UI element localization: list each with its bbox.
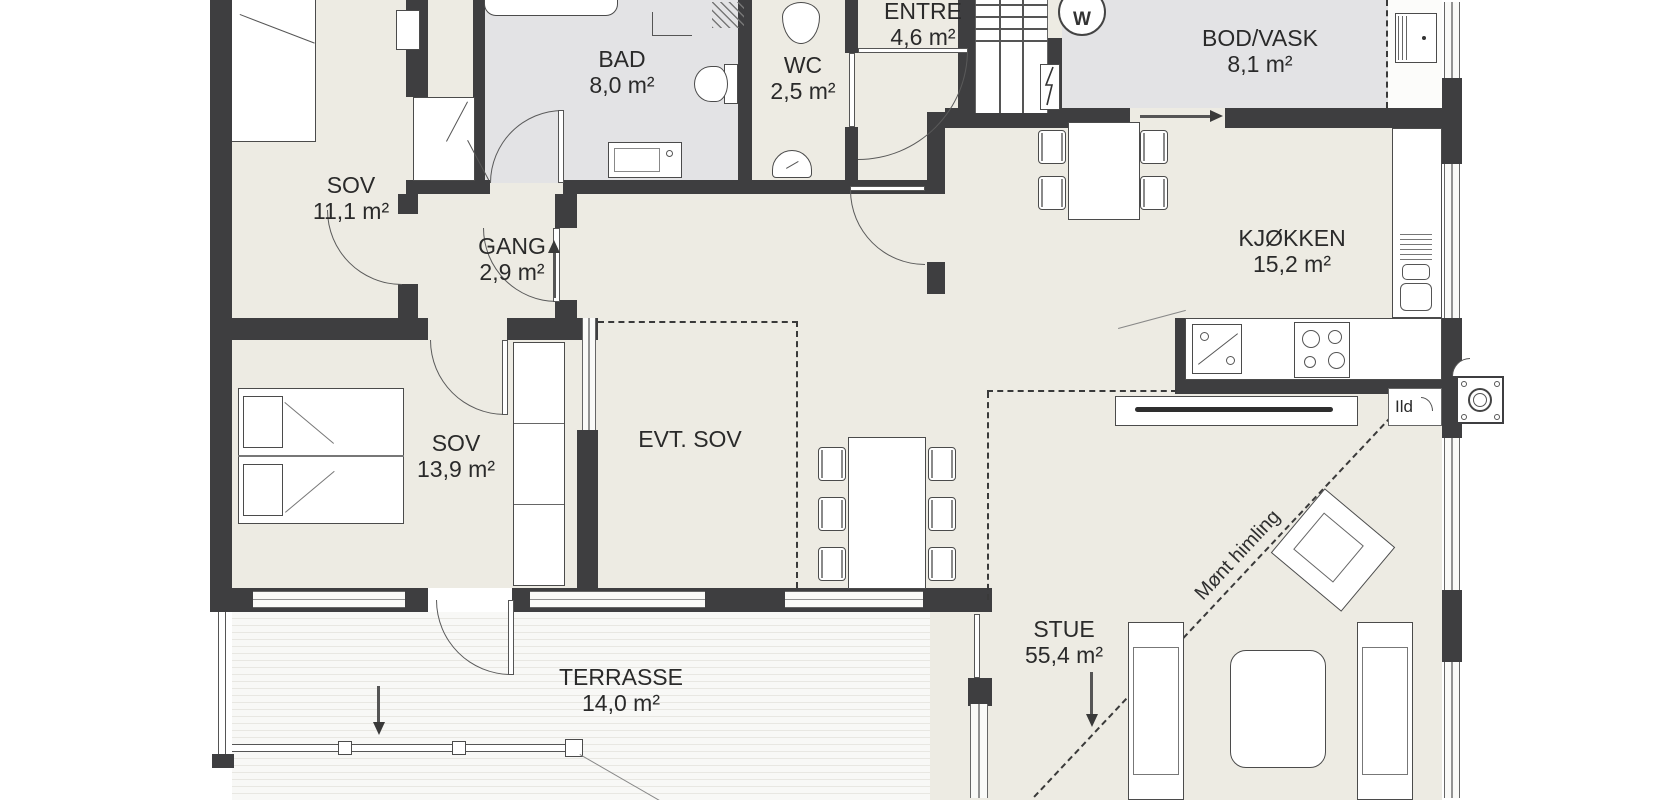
wall — [210, 0, 232, 612]
room-area: 15,2 m² — [1238, 251, 1345, 277]
dashed-line — [796, 321, 798, 588]
sink-basin — [1402, 264, 1430, 280]
railing-left — [218, 612, 226, 758]
wall — [1175, 318, 1185, 378]
burner — [1302, 330, 1320, 348]
chair — [928, 497, 956, 531]
room-label-stue: STUE 55,4 m² — [1025, 616, 1103, 668]
wall — [845, 127, 858, 180]
sofa — [1128, 622, 1184, 800]
room-name: WC — [770, 52, 835, 78]
dashed-line — [987, 390, 1177, 392]
chair — [928, 547, 956, 581]
wall — [232, 318, 428, 340]
burner — [1328, 352, 1345, 369]
desk — [396, 10, 420, 50]
stair-treads — [975, 4, 1048, 52]
arrow-down — [377, 686, 380, 724]
room-area: 11,1 m² — [313, 198, 389, 224]
wardrobe — [513, 342, 565, 586]
wall — [1225, 108, 1442, 128]
door-leaf — [850, 186, 925, 191]
room-label-kjokken: KJØKKEN 15,2 m² — [1238, 225, 1345, 277]
sofa-seat — [1362, 647, 1408, 775]
arrow-up-head — [548, 240, 560, 253]
vanity-faucet — [666, 150, 673, 157]
fireplace-label-box: Ild — [1388, 388, 1442, 426]
lightning-icon — [1041, 65, 1059, 107]
arrow-up — [553, 252, 556, 298]
room-area: 2,5 m² — [770, 78, 835, 104]
pillow — [243, 396, 283, 448]
vanity-basin — [614, 148, 660, 172]
railing-post — [452, 741, 466, 755]
dishwasher-symbol — [1200, 332, 1209, 341]
room-area: 13,9 m² — [417, 456, 495, 482]
room-label-entre: ENTRE 4,6 m² — [884, 0, 962, 50]
dining-table — [848, 437, 926, 589]
wall — [577, 430, 598, 588]
wall — [923, 588, 992, 612]
room-label-sov1: SOV 11,1 m² — [313, 172, 389, 224]
glazed-partition — [582, 318, 596, 430]
coffee-table — [1230, 650, 1326, 768]
dashed-line — [1386, 0, 1388, 108]
burner — [1328, 330, 1342, 344]
chair — [818, 547, 846, 581]
room-area: 2,9 m² — [478, 259, 546, 285]
sink-drainer — [1400, 234, 1432, 260]
dashed-line — [598, 321, 798, 323]
wall — [968, 678, 992, 706]
dishwasher-symbol — [1226, 356, 1235, 365]
dining-table — [1068, 122, 1140, 220]
door-leaf — [974, 614, 980, 678]
bed-middle-line — [238, 455, 404, 457]
toilet-bowl — [694, 66, 728, 102]
wardrobe-divider — [514, 423, 564, 424]
room-name: STUE — [1025, 616, 1103, 642]
arrow-down — [1090, 672, 1093, 716]
shower-corner — [652, 12, 692, 36]
burner — [1304, 356, 1316, 368]
room-name: SOV — [313, 172, 389, 198]
chair — [818, 497, 846, 531]
chimney-flue-inner — [1473, 393, 1487, 407]
arrow-right — [1140, 115, 1212, 118]
sink-basin — [1400, 283, 1432, 311]
wall — [927, 262, 945, 294]
room-name: BOD/VASK — [1202, 25, 1318, 51]
window — [1444, 662, 1460, 798]
room-label-bod-vask: BOD/VASK 8,1 m² — [1202, 25, 1318, 77]
bench-bar — [1135, 407, 1333, 412]
door-leaf — [849, 53, 855, 127]
door-leaf — [558, 110, 564, 183]
room-name: KJØKKEN — [1238, 225, 1345, 251]
room-label-sov2: SOV 13,9 m² — [417, 430, 495, 482]
room-area: 8,0 m² — [589, 72, 654, 98]
window — [1444, 2, 1460, 78]
room-label-terrasse: TERRASSE 14,0 m² — [559, 664, 683, 716]
room-label-wc: WC 2,5 m² — [770, 52, 835, 104]
chimney-bolt — [1461, 414, 1467, 420]
wall — [555, 300, 577, 318]
door-leaf — [508, 600, 514, 675]
chair — [1140, 130, 1168, 164]
window — [1444, 164, 1460, 318]
wall — [1442, 78, 1462, 164]
cabinet-slats — [1398, 16, 1407, 60]
room-area: 55,4 m² — [1025, 642, 1103, 668]
room-label-gang: GANG 2,9 m² — [478, 233, 546, 285]
room-area: 8,1 m² — [1202, 51, 1318, 77]
room-area: 14,0 m² — [559, 690, 683, 716]
dashed-line — [987, 392, 989, 600]
chimney-bolt — [1494, 414, 1500, 420]
stair-rail — [1022, 0, 1024, 113]
window — [970, 704, 988, 798]
room-name: SOV — [417, 430, 495, 456]
chair — [1140, 176, 1168, 210]
window — [253, 591, 405, 608]
door-leaf — [502, 340, 508, 415]
flue-curl — [1421, 397, 1433, 411]
wall — [845, 0, 858, 53]
wall — [555, 194, 577, 228]
wall — [1442, 590, 1462, 662]
room-name: EVT. SOV — [638, 426, 742, 452]
cooktop — [1294, 322, 1350, 378]
window — [530, 591, 705, 608]
chimney-bolt — [1461, 381, 1467, 387]
arrow-right-head — [1210, 110, 1223, 122]
sofa-seat — [1133, 647, 1179, 775]
room-name: TERRASSE — [559, 664, 683, 690]
room-label-evt-sov: EVT. SOV — [638, 426, 742, 452]
wall — [406, 180, 490, 194]
arrow-down-head — [373, 722, 385, 735]
chair — [1038, 130, 1066, 164]
room-area: 4,6 m² — [884, 24, 962, 50]
railing-post — [212, 754, 234, 768]
window — [1444, 438, 1460, 590]
window — [785, 591, 923, 608]
closet — [413, 97, 475, 181]
room-name: GANG — [478, 233, 546, 259]
armchair-seat — [1293, 512, 1364, 582]
railing-bottom — [232, 744, 572, 752]
chimney-bolt — [1494, 381, 1500, 387]
stair-rail — [999, 0, 1001, 113]
room-label-bad: BAD 8,0 m² — [589, 46, 654, 98]
room-name: ENTRE — [884, 0, 962, 24]
shower-spray — [712, 2, 744, 28]
pillow — [243, 464, 283, 516]
fireplace-label: Ild — [1395, 398, 1413, 416]
cabinet-handle — [1422, 36, 1426, 40]
chair — [928, 447, 956, 481]
washing-machine-label: W — [1073, 9, 1091, 30]
chair — [1038, 176, 1066, 210]
sofa — [1357, 622, 1413, 800]
floor-plan: W Ild — [0, 0, 1670, 800]
single-bed — [232, 0, 316, 142]
arrow-down-head — [1086, 714, 1098, 727]
bathtub — [484, 0, 618, 16]
railing-post — [338, 741, 352, 755]
room-name: BAD — [589, 46, 654, 72]
chair — [818, 447, 846, 481]
wall — [398, 284, 418, 318]
wardrobe-divider — [514, 504, 564, 505]
electrical-panel — [1040, 64, 1060, 110]
